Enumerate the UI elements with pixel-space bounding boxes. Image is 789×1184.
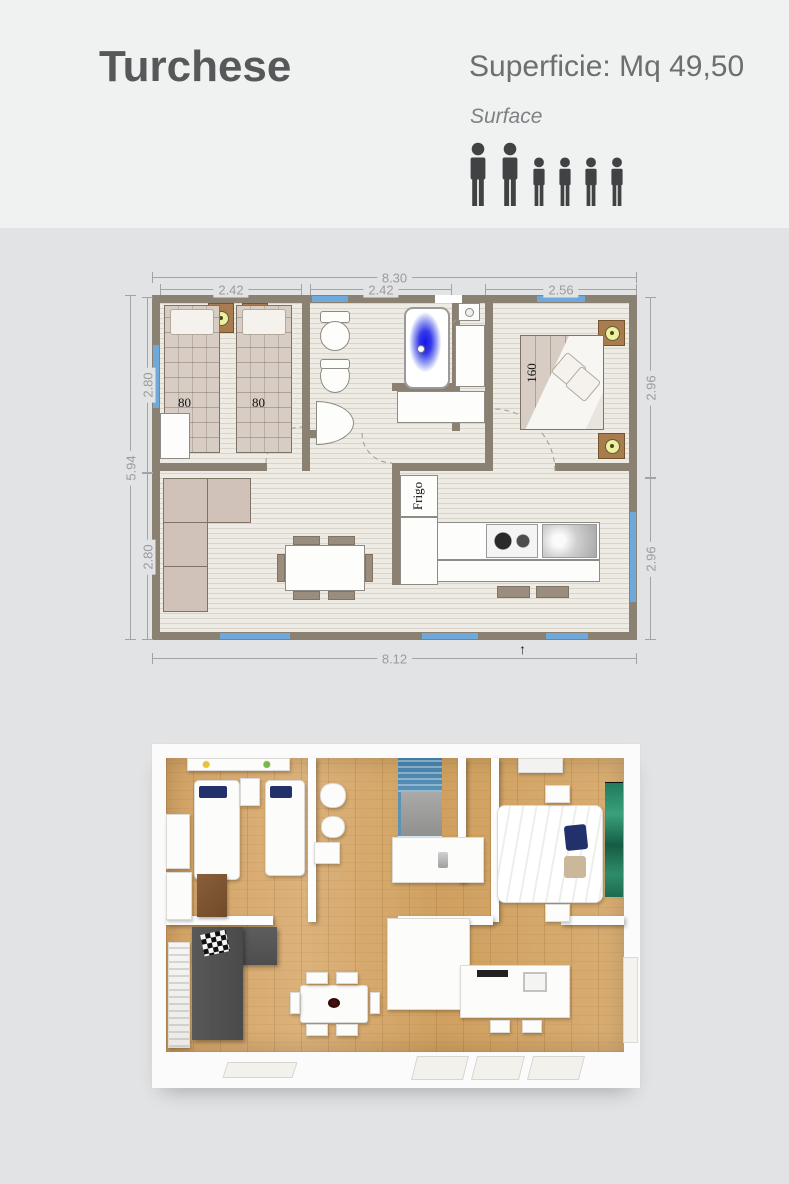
adult-icon <box>466 142 490 206</box>
dining-chair-4 <box>328 591 355 600</box>
render-double-bed <box>497 805 603 903</box>
render-bidet <box>321 816 345 838</box>
single-bed-2-size: 80 <box>252 395 265 411</box>
render-green-wardrobe <box>605 782 623 897</box>
render-kids-wardrobe-2 <box>166 872 192 920</box>
render-kids-chest <box>197 874 227 917</box>
render-floor-lamp <box>438 852 448 868</box>
lamp-master-2 <box>605 439 620 454</box>
dim-top-seg-1: 2.42 <box>160 283 302 296</box>
brochure-page: Turchese Superficie: Mq 49,50 Surface <box>0 0 789 1184</box>
render-wall-mid-right <box>561 916 624 925</box>
sofa-seat-3 <box>163 566 208 612</box>
header: Turchese Superficie: Mq 49,50 Surface <box>0 0 789 228</box>
render-shower-tiles <box>398 758 442 792</box>
sofa-corner <box>163 478 208 523</box>
single-bed-1-size: 80 <box>178 395 191 411</box>
dim-top-seg-2: 2.42 <box>310 283 452 296</box>
render-master-pillow-navy <box>564 824 588 851</box>
render-master-nightstand-2 <box>545 904 570 922</box>
page-title: Turchese <box>99 42 291 92</box>
render-chair-4 <box>336 1024 358 1036</box>
render-master-nightstand-1 <box>545 785 570 803</box>
kids-wardrobe <box>160 413 190 459</box>
kitchen-island-front <box>437 560 600 582</box>
render-stool-2 <box>522 1020 542 1033</box>
render-chair-3 <box>306 1024 328 1036</box>
dim-left-total: 5.94 <box>124 295 137 640</box>
render-kids-wardrobe-1 <box>166 814 190 869</box>
render-kids-nightstand <box>240 778 260 806</box>
render-right-window <box>623 957 638 1043</box>
dining-chair-1 <box>293 536 320 545</box>
kitchen-counter-left <box>400 517 438 585</box>
bathtub-water <box>409 312 445 384</box>
render-chair-1 <box>306 972 328 984</box>
render-kids-pillow-2 <box>270 786 292 798</box>
render-master-pillow-beige <box>564 856 586 878</box>
render-doormat-1 <box>222 1062 297 1078</box>
render-centerpiece <box>328 998 340 1008</box>
dining-chair-6 <box>365 554 373 582</box>
sofa-arm <box>207 478 251 523</box>
render-kids-pillow-1 <box>199 786 227 798</box>
kitchen-sink <box>542 524 597 558</box>
occupancy-icons <box>466 140 626 206</box>
render-wall-unit <box>168 942 190 1048</box>
dining-table <box>285 545 365 591</box>
boiler-dial <box>465 308 474 317</box>
bathtub-drain <box>417 345 425 353</box>
child-icon <box>530 157 548 206</box>
dining-chair-3 <box>293 591 320 600</box>
toilet-bowl <box>320 321 350 351</box>
render-shower-floor <box>398 792 442 838</box>
child-icon <box>608 157 626 206</box>
render-hob <box>477 970 508 977</box>
floorplan-2d: 80 80 160 <box>152 295 637 640</box>
dim-right-seg-2: 2.96 <box>644 478 657 640</box>
hallway-closet <box>397 391 485 423</box>
dim-top-seg-3: 2.56 <box>485 283 637 296</box>
kitchen-stool-2 <box>536 586 569 598</box>
kitchen-stool-1 <box>497 586 530 598</box>
dim-left-seg-1: 2.80 <box>141 297 154 473</box>
dining-chair-5 <box>277 554 285 582</box>
single-bed-2-pillow <box>242 309 286 335</box>
floorplan-3d <box>152 744 640 1088</box>
single-bed-1-pillow <box>170 309 214 335</box>
render-bath-sink <box>314 842 340 864</box>
bath-cabinet <box>455 325 485 387</box>
cooktop <box>486 524 538 558</box>
render-sink-3d <box>523 972 547 992</box>
surface-area-label: Superficie: Mq 49,50 <box>469 50 744 84</box>
render-wall-bedroom-bath <box>308 758 316 922</box>
render-toilet <box>320 783 346 808</box>
render-deck-3 <box>527 1056 585 1080</box>
render-skylight <box>518 758 563 773</box>
dim-right-seg-1: 2.96 <box>644 297 657 478</box>
render-kids-shelf <box>187 758 290 771</box>
child-icon <box>556 157 574 206</box>
render-chair-5 <box>290 992 300 1014</box>
render-chair-6 <box>370 992 380 1014</box>
bidet-back <box>320 359 350 369</box>
sofa-seat-2 <box>163 522 208 567</box>
dim-left-seg-2: 2.80 <box>141 473 154 640</box>
render-deck-1 <box>411 1056 469 1080</box>
child-icon <box>582 157 600 206</box>
north-arrow-icon: ↑ <box>519 641 526 657</box>
lamp-master-1 <box>605 326 620 341</box>
render-deck-2 <box>471 1056 525 1080</box>
fridge-label: Frigo <box>410 482 426 510</box>
double-bed-size: 160 <box>524 363 540 383</box>
bathtub <box>404 307 450 389</box>
render-stool-1 <box>490 1020 510 1033</box>
dim-bottom-total: 8.12 <box>152 652 637 665</box>
surface-caption: Surface <box>470 105 542 129</box>
render-chair-2 <box>336 972 358 984</box>
dining-chair-2 <box>328 536 355 545</box>
render-kitchen-counter <box>387 918 470 1010</box>
adult-icon <box>498 142 522 206</box>
